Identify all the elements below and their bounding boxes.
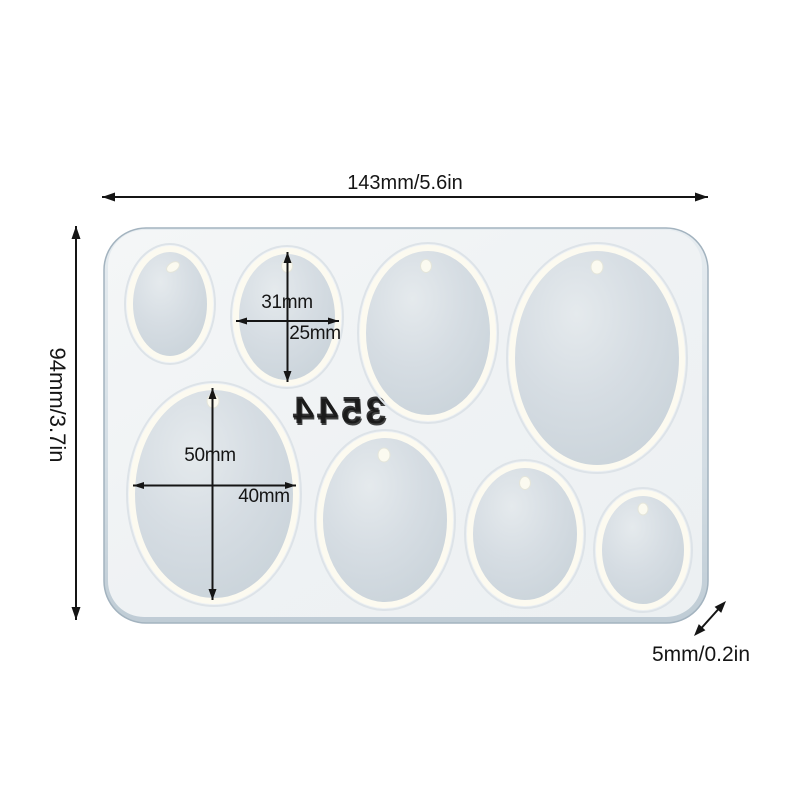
product-diagram-canvas: 3544 3544 xyxy=(0,0,800,800)
cavity-6-hanging-hole xyxy=(378,448,390,462)
silicone-mold-dimension-diagram: 3544 3544 xyxy=(0,0,800,800)
overall-width-label: 143mm/5.6in xyxy=(347,172,463,194)
mold-watermark: 3544 3544 xyxy=(290,390,388,434)
overall-height-arrowhead-bottom xyxy=(72,607,81,620)
cavity-3-hanging-hole xyxy=(421,260,432,273)
cavity-7-hanging-hole xyxy=(520,477,531,490)
cavity-4-hanging-hole xyxy=(591,260,603,274)
overall-width-dimension: 143mm/5.6in xyxy=(102,172,708,202)
cavity-8-hanging-hole xyxy=(638,503,648,515)
overall-width-arrowhead-left xyxy=(102,193,115,202)
overall-height-dimension: 94mm/3.7in xyxy=(45,226,81,620)
large-cavity-width-label: 40mm xyxy=(238,486,290,507)
overall-width-arrowhead-right xyxy=(695,193,708,202)
cavity-8 xyxy=(594,488,692,612)
mold-watermark-text: 3544 xyxy=(290,390,387,432)
cavity-1 xyxy=(125,244,215,364)
cavity-3 xyxy=(358,243,498,423)
cavity-3-well xyxy=(363,248,493,418)
thickness-label: 5mm/0.2in xyxy=(652,643,750,666)
mold: 3544 3544 xyxy=(104,228,708,623)
overall-height-label: 94mm/3.7in xyxy=(45,348,70,463)
cavity-4-well xyxy=(512,248,682,468)
overall-height-arrowhead-top xyxy=(72,226,81,239)
medium-cavity-width-label: 25mm xyxy=(289,323,341,344)
cavity-7 xyxy=(465,460,585,608)
medium-cavity-height-label: 31mm xyxy=(261,292,313,313)
cavity-6 xyxy=(315,430,455,610)
large-cavity-height-label: 50mm xyxy=(184,445,236,466)
